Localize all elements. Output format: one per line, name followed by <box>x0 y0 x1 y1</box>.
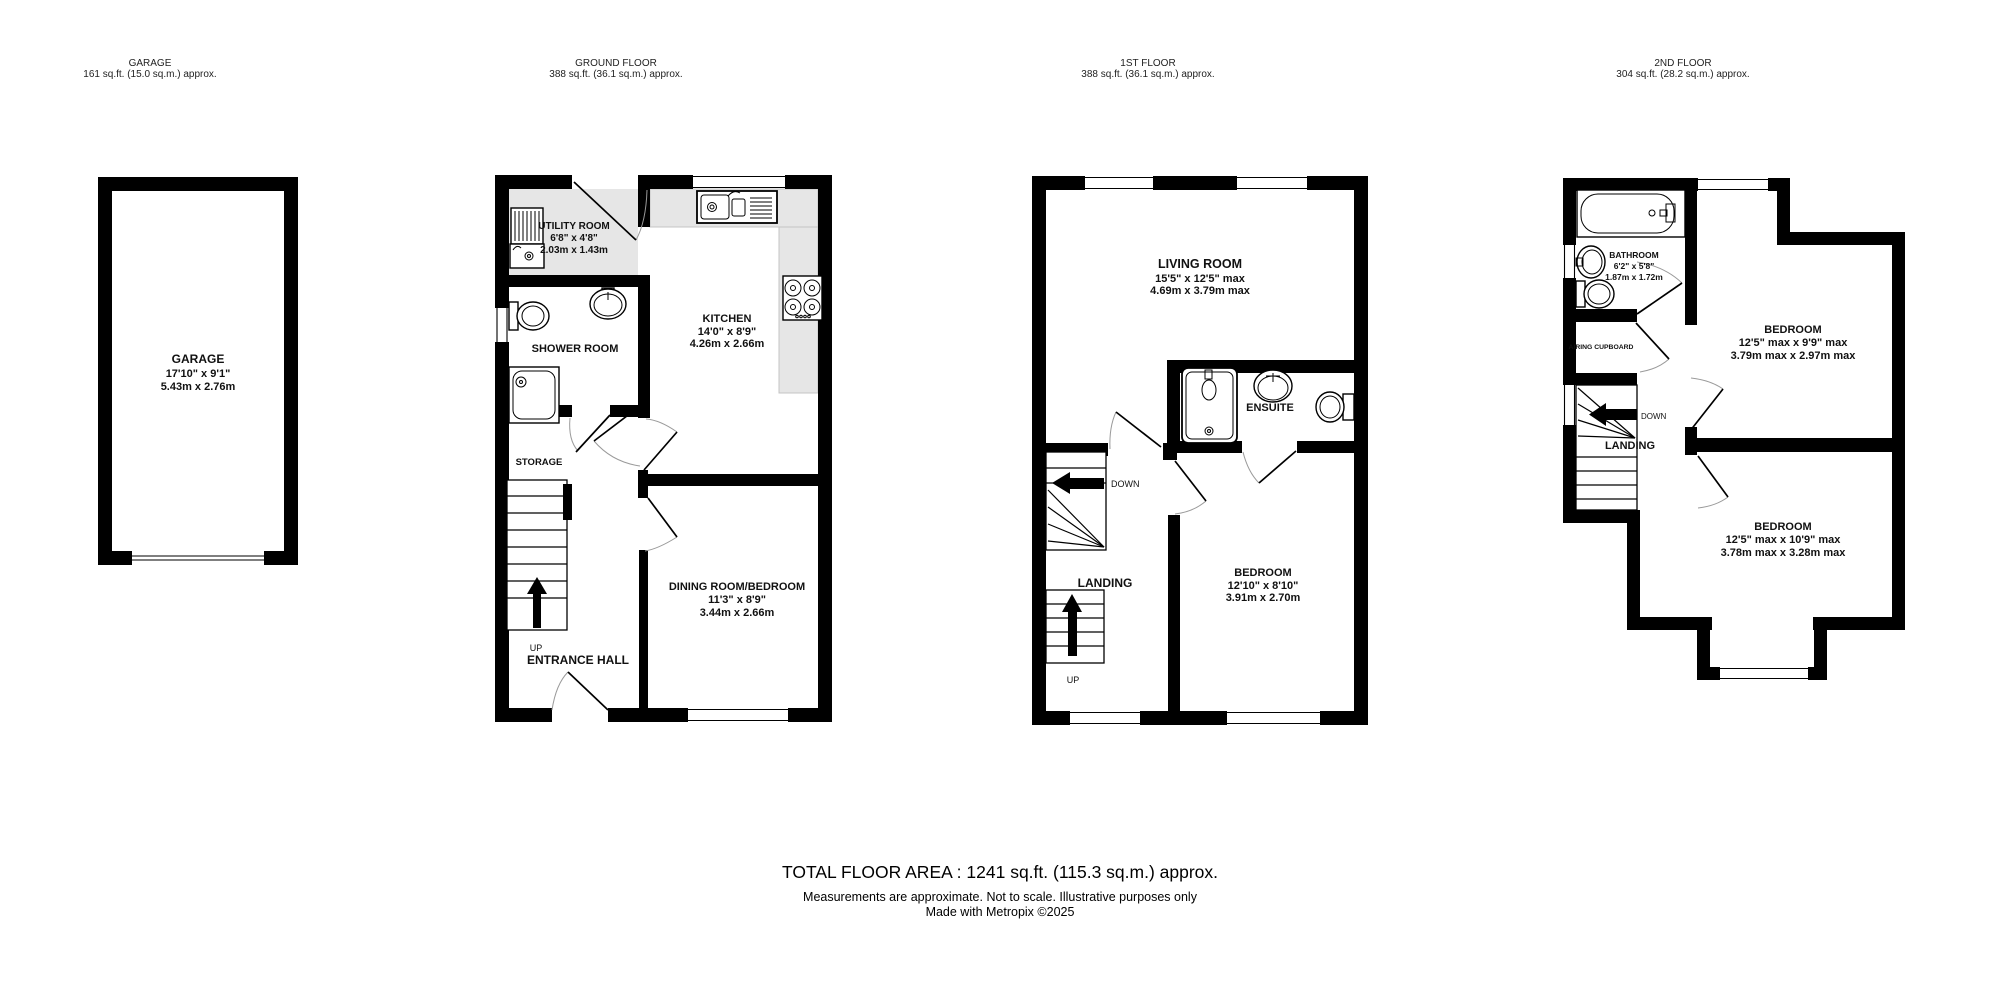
utility-room-metric: 2.03m x 1.43m <box>540 245 608 256</box>
living-room-door <box>1116 412 1161 447</box>
bedroom3-door <box>1698 456 1728 497</box>
ground-header-title: GROUND FLOOR <box>575 58 657 69</box>
garage-room-metric: 5.43m x 2.76m <box>161 381 236 393</box>
bedroom3-metric: 3.78m max x 3.28m max <box>1721 547 1847 559</box>
down-label-first: DOWN <box>1111 479 1140 489</box>
bathroom-door <box>1637 283 1682 314</box>
bedroom2-metric: 3.79m max x 2.97m max <box>1731 350 1857 362</box>
kitchen-label: KITCHEN <box>703 313 752 325</box>
ensuite-label: ENSUITE <box>1246 402 1294 414</box>
bedroom1-imperial: 12'10" x 8'10" <box>1228 580 1299 592</box>
second-header-area: 304 sq.ft. (28.2 sq.m.) approx. <box>1616 69 1749 80</box>
landing-label-first: LANDING <box>1078 576 1133 590</box>
bedroom3-label: BEDROOM <box>1754 521 1811 533</box>
living-room-label: LIVING ROOM <box>1158 257 1242 271</box>
bathroom-metric: 1.87m x 1.72m <box>1605 272 1663 282</box>
floorplan-canvas: GARAGE 161 sq.ft. (15.0 sq.m.) approx. G… <box>0 0 2000 982</box>
dining-room-metric: 3.44m x 2.66m <box>700 607 775 619</box>
garage-room-label: GARAGE <box>172 352 225 366</box>
ensuite-basin <box>1254 370 1292 402</box>
bathroom-toilet <box>1576 280 1614 308</box>
bedroom2-door <box>1690 389 1723 431</box>
credit: Made with Metropix ©2025 <box>926 905 1075 919</box>
second-floor-plan: BATHROOM 6'2" x 5'8" 1.87m x 1.72m AIRIN… <box>1563 178 1905 680</box>
dining-room-imperial: 11'3" x 8'9" <box>708 594 766 606</box>
bathroom-label: BATHROOM <box>1609 250 1658 260</box>
total-floor-area: TOTAL FLOOR AREA : 1241 sq.ft. (115.3 sq… <box>782 862 1218 882</box>
down-arrow-shaft <box>1070 478 1104 489</box>
ensuite-door <box>1259 451 1296 483</box>
up-arrow-shaft <box>1068 612 1077 656</box>
kitchen-imperial: 14'0" x 8'9" <box>698 326 756 338</box>
utility-sink <box>510 244 544 268</box>
garage-door <box>132 556 264 560</box>
shower-room-toilet <box>509 302 549 330</box>
garage-room-imperial: 17'10" x 9'1" <box>166 368 231 380</box>
utility-room-imperial: 6'8" x 4'8" <box>550 233 598 244</box>
kitchen-sink <box>697 191 777 223</box>
floorplan-svg: GARAGE 161 sq.ft. (15.0 sq.m.) approx. G… <box>0 0 2000 982</box>
bedroom2-imperial: 12'5" max x 9'9" max <box>1739 337 1849 349</box>
garage-header-title: GARAGE <box>129 58 172 69</box>
bedroom1-label: BEDROOM <box>1234 567 1291 579</box>
living-room-metric: 4.69m x 3.79m max <box>1150 285 1251 297</box>
first-floor-stairs-down <box>1046 452 1106 550</box>
down-label-second: DOWN <box>1641 412 1667 421</box>
dining-room-door <box>648 498 677 537</box>
shower-room-basin <box>590 288 626 319</box>
ground-header-area: 388 sq.ft. (36.1 sq.m.) approx. <box>549 69 682 80</box>
front-door <box>568 672 608 710</box>
down-arrow-shaft <box>1606 409 1637 420</box>
second-header-title: 2ND FLOOR <box>1654 58 1711 69</box>
shower-room-label: SHOWER ROOM <box>532 343 619 355</box>
first-floor-plan: LIVING ROOM 15'5" x 12'5" max 4.69m x 3.… <box>1032 176 1368 725</box>
bedroom-door <box>1175 461 1206 501</box>
kitchen-metric: 4.26m x 2.66m <box>690 338 765 350</box>
up-arrow-shaft <box>533 594 541 628</box>
bathroom-basin <box>1576 246 1605 278</box>
utility-room-label: UTILITY ROOM <box>538 221 609 232</box>
bathroom-bath <box>1577 190 1685 237</box>
landing-label-second: LANDING <box>1605 440 1655 452</box>
storage-label: STORAGE <box>516 457 563 468</box>
bedroom1-metric: 3.91m x 2.70m <box>1226 592 1301 604</box>
ensuite-toilet <box>1316 392 1354 422</box>
shower-tray <box>509 367 559 423</box>
ground-floor-stairs <box>507 480 572 630</box>
up-label-ground: UP <box>530 643 543 653</box>
bedroom2-label: BEDROOM <box>1764 324 1821 336</box>
bedroom3-imperial: 12'5" max x 10'9" max <box>1726 534 1842 546</box>
first-floor-stairs-up <box>1046 590 1104 663</box>
floor-headers: GARAGE 161 sq.ft. (15.0 sq.m.) approx. G… <box>83 58 1749 80</box>
ensuite-shower <box>1182 368 1237 443</box>
up-label-first: UP <box>1067 675 1080 685</box>
garage-header-area: 161 sq.ft. (15.0 sq.m.) approx. <box>83 69 216 80</box>
footer: TOTAL FLOOR AREA : 1241 sq.ft. (115.3 sq… <box>782 862 1218 919</box>
airing-cupboard-door <box>1636 323 1669 359</box>
airing-cupboard-label: AIRING CUPBOARD <box>1569 344 1634 351</box>
disclaimer: Measurements are approximate. Not to sca… <box>803 890 1198 904</box>
living-room-imperial: 15'5" x 12'5" max <box>1155 273 1246 285</box>
ground-floor-plan: UTILITY ROOM 6'8" x 4'8" 2.03m x 1.43m K… <box>495 175 832 722</box>
entrance-hall-label: ENTRANCE HALL <box>527 653 629 667</box>
first-header-title: 1ST FLOOR <box>1120 58 1175 69</box>
bathroom-imperial: 6'2" x 5'8" <box>1614 261 1654 271</box>
kitchen-door <box>644 432 677 470</box>
dining-room-label: DINING ROOM/BEDROOM <box>669 581 805 593</box>
first-header-area: 388 sq.ft. (36.1 sq.m.) approx. <box>1081 69 1214 80</box>
second-floor-doors <box>1636 262 1728 508</box>
garage-plan: GARAGE 17'10" x 9'1" 5.43m x 2.76m <box>98 177 298 565</box>
kitchen-hob <box>783 276 822 320</box>
